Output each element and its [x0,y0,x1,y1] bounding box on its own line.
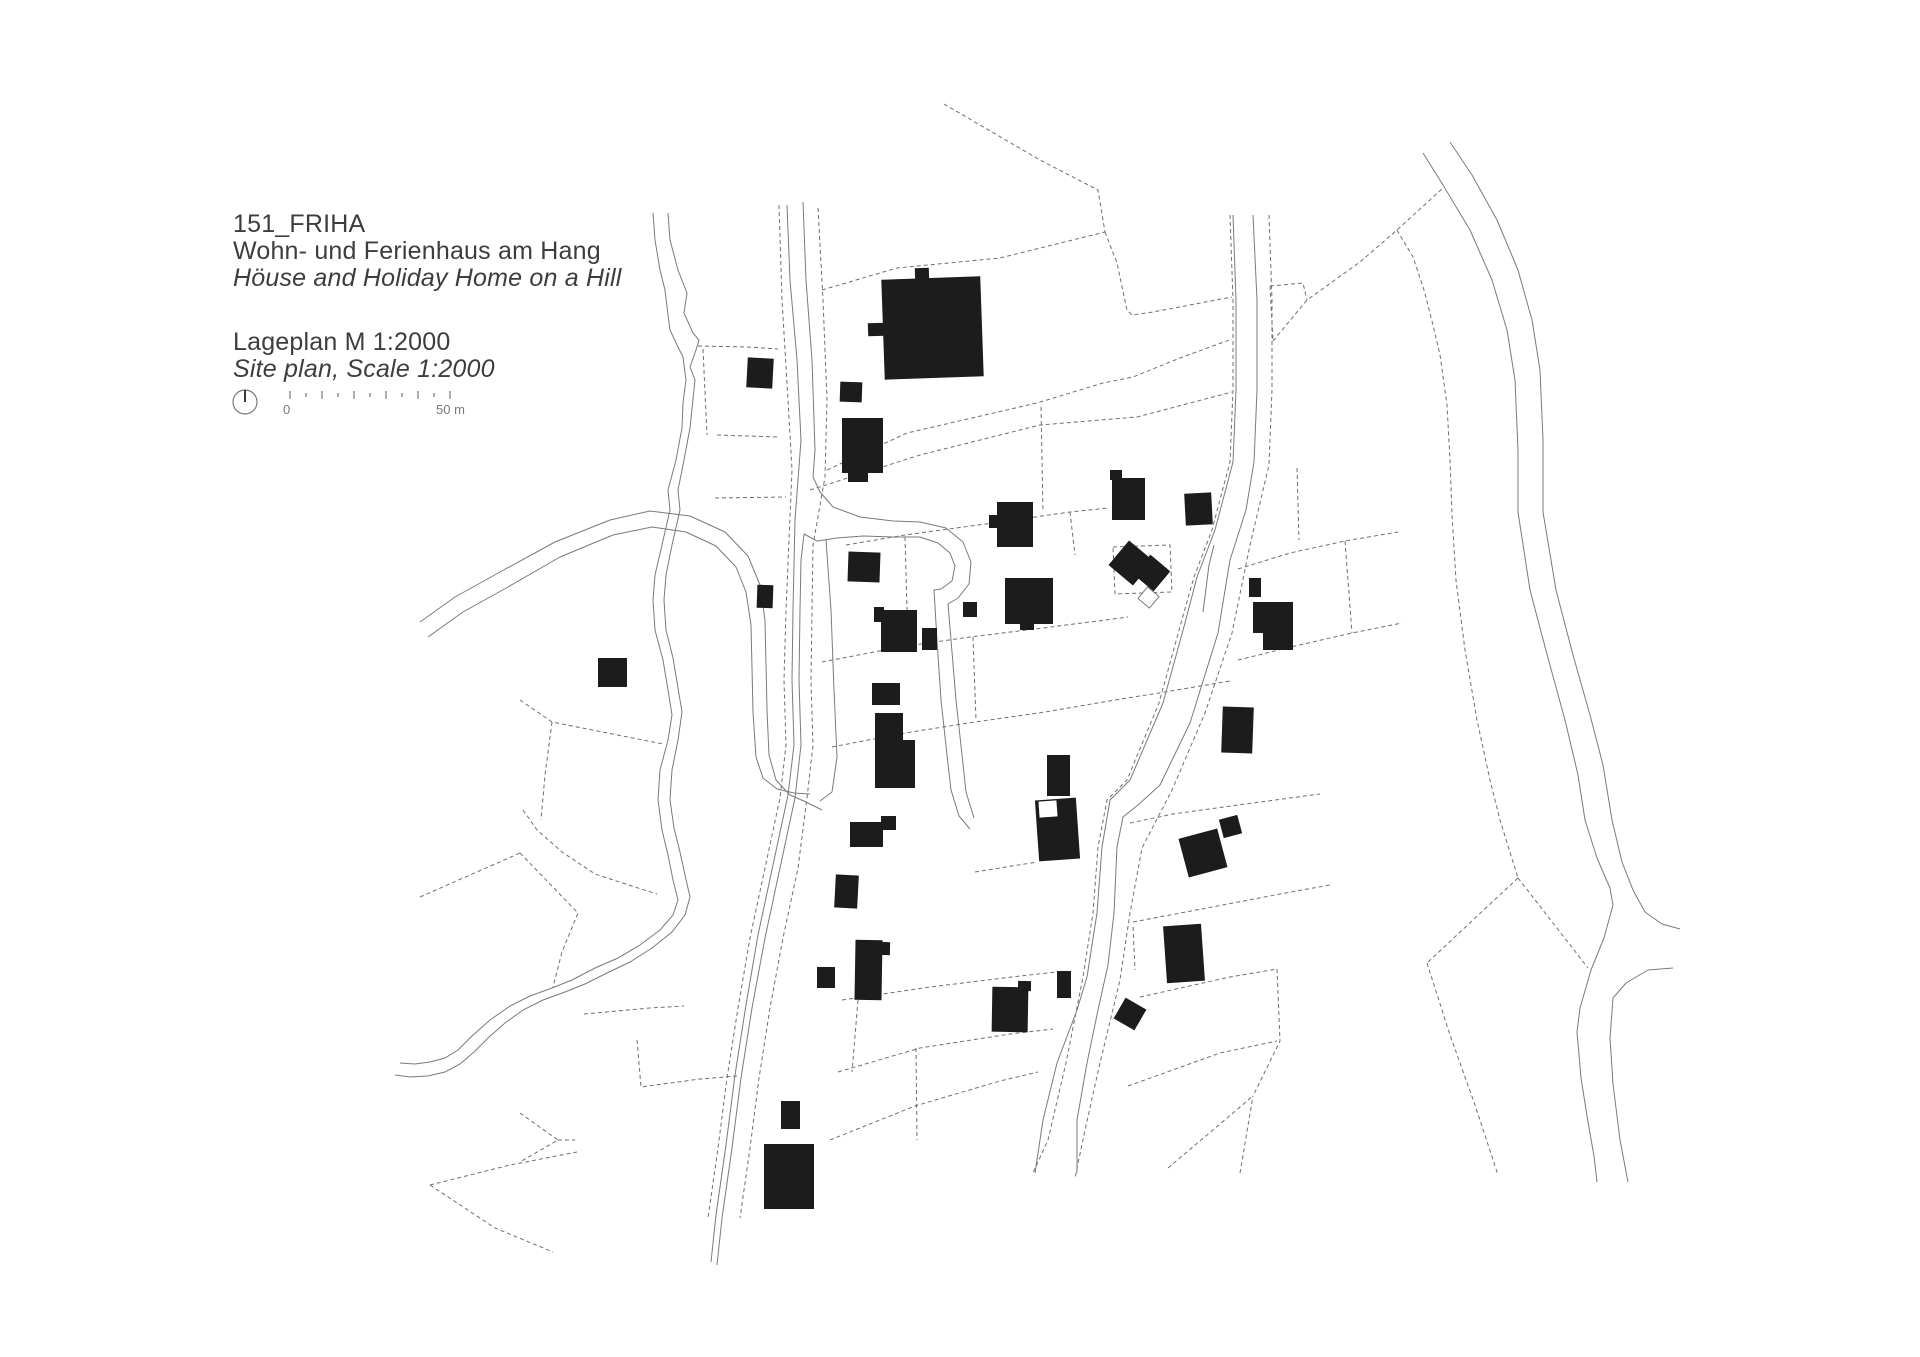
building-footprint [1114,998,1147,1031]
parcel-boundary-line [1105,232,1232,315]
parcel-boundary-line [1427,963,1498,1175]
scale-bar-zero-label: 0 [283,402,290,417]
parcel-boundary-line [430,1152,577,1185]
building-footprint [1219,815,1242,838]
parcel-boundary-line [698,346,778,349]
parcel-boundary-line [520,853,578,987]
parcel-boundary-line [1240,1096,1253,1173]
parcel-boundary-line [1133,927,1135,970]
building-footprint [875,713,915,788]
road-edge-line [1203,545,1214,612]
parcel-boundary-line [846,508,1108,545]
parcel-boundary-line [1070,512,1075,555]
parcel-boundary-line [838,1029,1053,1072]
parcel-boundary-line [541,722,552,820]
building-footprint [881,816,896,830]
parcel-boundary-line [973,637,976,720]
parcel-boundary-line [822,617,1128,662]
building-footprint [842,418,883,473]
parcel-boundary-line [1032,215,1233,1175]
parcel-boundary-line [1128,1041,1277,1086]
project-id: 151_FRIHA [233,211,622,238]
building-footprint [881,610,917,652]
site-plan-map [0,0,1920,1357]
building-footprint [848,470,868,482]
parcel-boundary-line [916,1048,917,1140]
building-courtyard-cutout [1038,800,1057,817]
building-footprint [1253,602,1293,650]
road-edge-line [1035,215,1236,1173]
building-footprint [847,551,880,582]
parcel-boundary-line [944,104,1105,232]
building-footprint [746,357,774,388]
scale-bar-end-label: 50 m [436,402,465,417]
road-edge-line [820,540,837,801]
project-subtitle-de: Wohn- und Ferienhaus am Hang [233,238,622,265]
building-footprint [915,268,929,282]
parcel-boundary-line [1297,468,1299,540]
parcel-boundary-line [708,205,792,1218]
building-footprint [764,1144,814,1209]
parcel-boundary-line [1518,878,1588,968]
building-footprint [1057,971,1071,998]
road-edge-line [1450,142,1680,929]
building-footprint [1047,755,1070,796]
building-footprint [840,382,863,403]
building-footprint [1163,924,1205,984]
building-footprint [872,683,900,705]
parcel-boundary-line [520,700,663,744]
parcel-boundary-line [637,1040,737,1087]
road-edge-line [920,537,970,829]
building-footprint [876,942,890,955]
parcel-boundary-line [520,1113,558,1162]
road-edge-line [1077,215,1257,1173]
building-footprint [757,585,774,609]
building-footprint [850,822,883,847]
parcel-boundary-line [717,435,778,437]
building-footprint [1249,578,1261,597]
unbuilt-structure-outline [1138,587,1159,608]
parcel-boundary-line [1273,188,1443,341]
building-footprint [834,874,859,908]
parcel-boundary-line [975,862,1037,872]
plan-label-block: Lageplan M 1:2000 Site plan, Scale 1:200… [233,329,495,383]
parcel-boundary-line [584,1006,684,1014]
building-footprint [868,323,885,337]
parcel-boundary-line [1397,230,1518,878]
parcel-boundary-line [1345,541,1352,633]
parcel-boundary-line [420,853,520,897]
parcel-boundary-line [1270,283,1307,300]
plan-label-de: Lageplan M 1:2000 [233,329,495,356]
parcel-boundary-line [1238,532,1398,569]
building-footprint [1184,492,1213,525]
parcel-boundary-line [830,1072,1038,1140]
building-footprint [1018,981,1031,991]
parcel-boundary-line [1253,969,1280,1096]
building-footprint [817,967,835,988]
building-footprint [781,1101,800,1129]
site-plan-sheet: 151_FRIHA Wohn- und Ferienhaus am Hang H… [0,0,1920,1357]
building-footprint [1020,620,1034,630]
building-footprint [1005,578,1053,624]
title-block: 151_FRIHA Wohn- und Ferienhaus am Hang H… [233,211,622,292]
building-footprint [1112,478,1145,520]
road-edge-line [1423,153,1613,1182]
building-footprint [1179,829,1228,878]
building-footprint [922,628,937,650]
parcel-boundary-line [1075,215,1272,1178]
building-footprint [992,987,1029,1033]
building-footprint [1221,706,1254,753]
parcel-boundary-line [1427,878,1518,963]
building-footprint [997,502,1033,547]
road-edge-line [920,522,974,818]
parcel-boundary-line [523,810,657,894]
plan-label-en: Site plan, Scale 1:2000 [233,356,495,383]
parcel-boundary-line [430,1185,553,1252]
building-footprint [963,602,977,617]
parcel-boundary-line [1168,1096,1253,1168]
parcel-boundary-line [715,497,786,498]
parcel-boundary-line [1140,969,1277,997]
building-footprint [598,658,627,687]
parcel-boundary-line [1133,885,1330,922]
parcel-boundary-line [703,349,707,435]
parcel-boundary-line [1041,407,1043,512]
road-edge-line [1610,968,1673,1182]
project-subtitle-en: Höuse and Holiday Home on a Hill [233,265,622,292]
building-footprint [881,276,983,379]
parcel-boundary-line [852,1000,858,1072]
building-footprint [989,515,998,528]
